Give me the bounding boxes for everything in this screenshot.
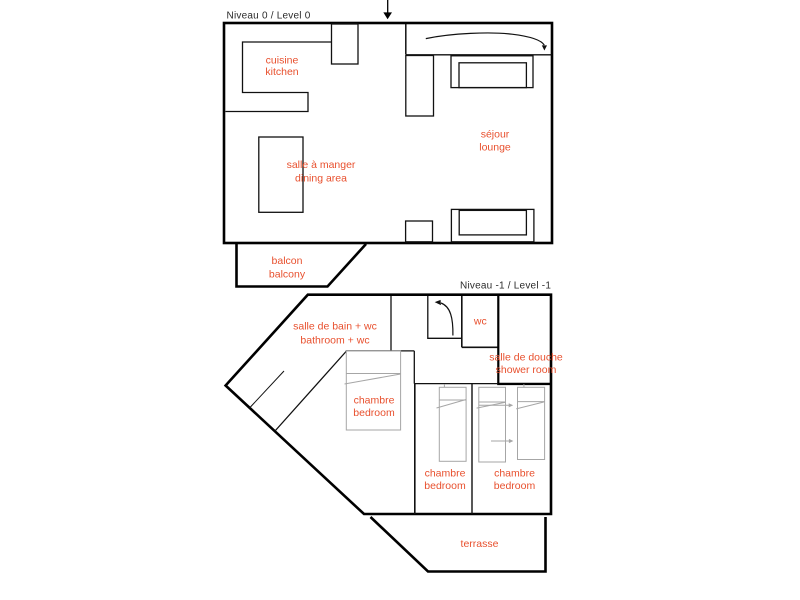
svg-text:Niveau -1 / Level -1: Niveau -1 / Level -1 <box>460 281 551 292</box>
svg-text:cuisine: cuisine <box>266 55 299 67</box>
svg-text:wc: wc <box>473 316 487 328</box>
svg-text:chambre: chambre <box>354 395 395 407</box>
svg-text:balcon: balcon <box>272 255 303 267</box>
svg-text:balcony: balcony <box>269 269 306 281</box>
svg-text:dining area: dining area <box>295 173 347 185</box>
svg-text:salle de douche: salle de douche <box>489 352 563 364</box>
svg-text:shower room: shower room <box>496 364 557 376</box>
svg-text:lounge: lounge <box>479 142 511 154</box>
svg-text:bathroom + wc: bathroom + wc <box>300 334 369 346</box>
svg-text:kitchen: kitchen <box>265 66 298 78</box>
svg-text:salle à manger: salle à manger <box>287 159 356 171</box>
svg-text:bedroom: bedroom <box>424 480 466 492</box>
svg-text:salle de bain + wc: salle de bain + wc <box>293 321 377 333</box>
svg-text:Niveau 0 / Level 0: Niveau 0 / Level 0 <box>227 11 311 22</box>
svg-text:chambre: chambre <box>425 468 466 480</box>
svg-text:séjour: séjour <box>481 129 510 141</box>
svg-text:terrasse: terrasse <box>461 538 499 550</box>
svg-text:chambre: chambre <box>494 468 535 480</box>
svg-text:bedroom: bedroom <box>353 407 395 419</box>
svg-text:bedroom: bedroom <box>494 480 536 492</box>
